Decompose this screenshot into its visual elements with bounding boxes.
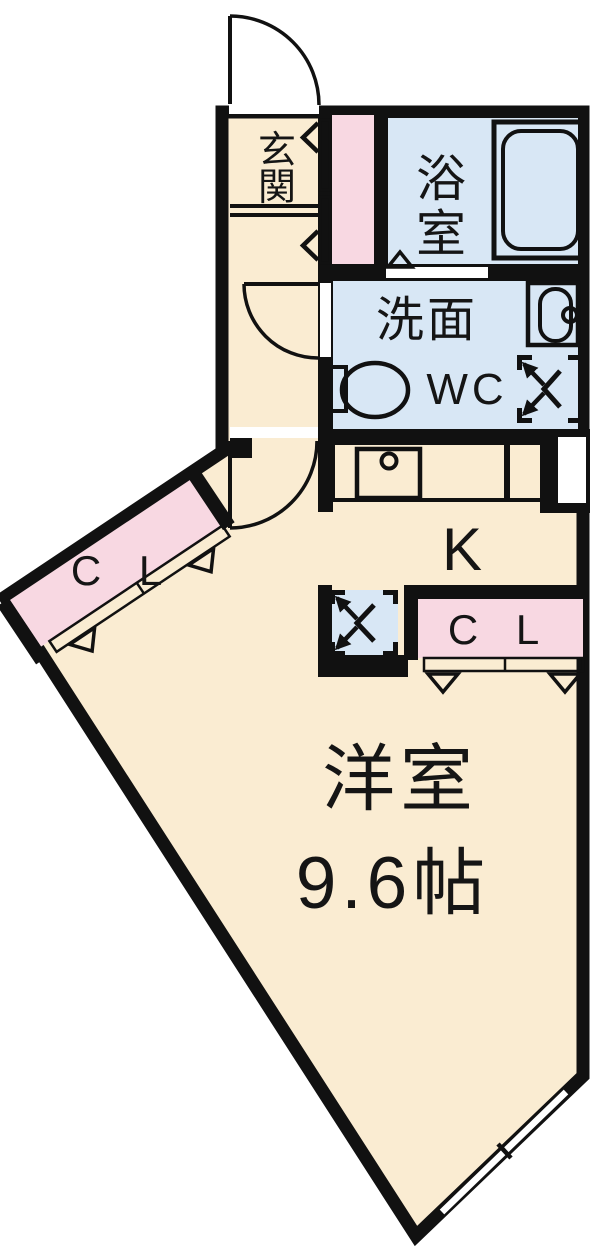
bathroom-area (386, 118, 578, 268)
bathroom-label-char1: 浴 (416, 151, 466, 207)
closet-right-label: C L (448, 606, 552, 653)
entrance-opening (229, 104, 319, 114)
wall-segment (404, 585, 418, 660)
western-room-size-label: 9.6帖 (296, 843, 490, 924)
wc-label: WC (426, 365, 507, 414)
entry-storage-area (330, 115, 377, 267)
kitchen-window (558, 437, 586, 503)
western-room-label: 洋室 (322, 739, 478, 820)
closet-left-label: C L (71, 547, 175, 594)
bathroom-label-char2: 室 (416, 206, 466, 262)
wall-segment (404, 585, 583, 599)
genkan-label-char2: 関 (258, 167, 296, 209)
room-door-opening (230, 427, 318, 438)
genkan-label-char1: 玄 (258, 130, 296, 172)
floorplan: 玄 関 浴 室 洗面 WC K C L C L 洋室 9.6帖 (0, 0, 600, 1254)
washroom-label: 洗面 (376, 294, 478, 347)
counter-divider (504, 444, 510, 500)
kitchen-label: K (442, 516, 482, 583)
wall-segment (230, 438, 252, 458)
genkan-step-line (230, 213, 318, 217)
wall-segment (374, 112, 388, 270)
washroom-door-opening (320, 283, 331, 357)
wall-segment (318, 655, 408, 677)
entrance-threshold-line (229, 114, 319, 118)
